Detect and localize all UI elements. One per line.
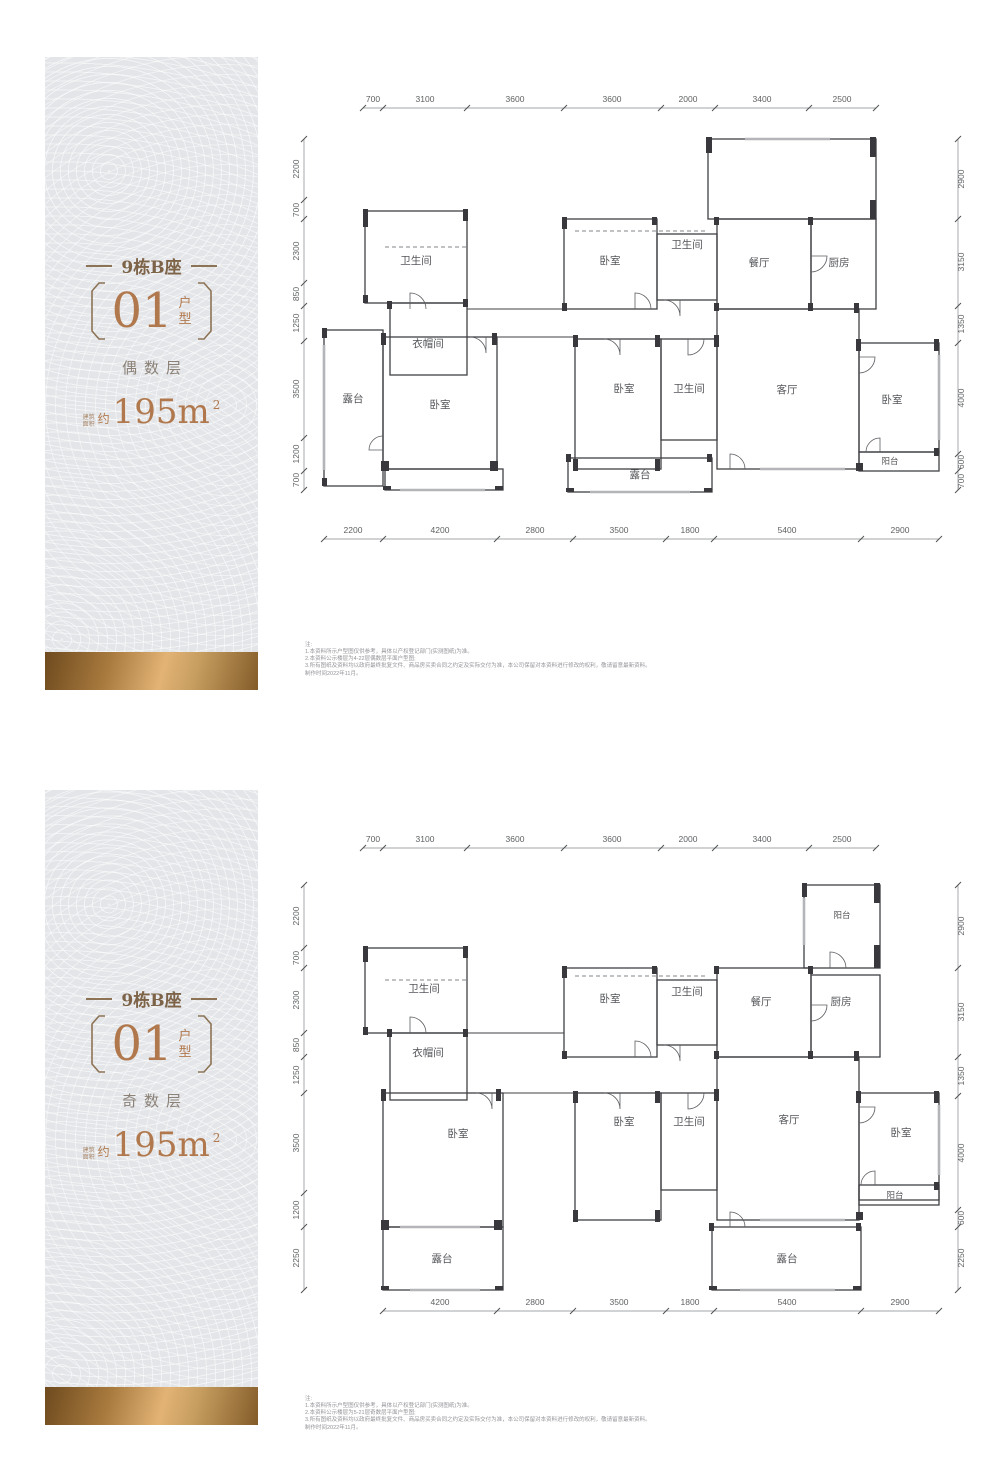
room-label-cloakroom: 衣帽间 <box>412 337 444 350</box>
area-value: 195m <box>113 1128 210 1162</box>
dim-label: 2900 <box>891 525 910 535</box>
dim-label: 3600 <box>603 94 622 104</box>
floor-type-label: 奇数层 <box>45 1090 258 1111</box>
bracket-right-icon <box>198 282 212 340</box>
dim-label: 2900 <box>956 169 966 188</box>
dim-label: 2800 <box>526 525 545 535</box>
decor-dash-right <box>191 265 217 267</box>
building-name: 9栋B座 <box>121 986 181 1011</box>
dim-label: 2800 <box>526 1297 545 1307</box>
room-label-bed-mid: 卧室 <box>614 382 635 395</box>
dim-label: 3500 <box>610 1297 629 1307</box>
dim-label: 4000 <box>956 388 966 407</box>
floor-plan-odd: 700 3100 3600 3600 2000 3400 2500 4200 2… <box>290 800 990 1340</box>
building-label: 9栋B座 <box>45 253 258 278</box>
room-label-bed-left: 卧室 <box>430 398 451 411</box>
dim-label: 3500 <box>291 379 301 398</box>
area-block: 建筑 面积 约 195m 2 <box>45 395 258 433</box>
bracket-left-icon <box>91 1015 105 1073</box>
dim-label: 700 <box>366 94 380 104</box>
note-line: 制作时间2022年11月。 <box>305 671 735 678</box>
room-label-bath-top-mid: 卫生间 <box>671 985 703 998</box>
dim-label: 1250 <box>291 1065 301 1084</box>
unit-suffix-bottom: 型 <box>179 312 192 326</box>
dim-label: 2200 <box>291 906 301 925</box>
dim-label: 3600 <box>506 834 525 844</box>
dim-label: 2250 <box>291 1248 301 1267</box>
dim-label: 2500 <box>833 834 852 844</box>
dim-label: 700 <box>291 473 301 487</box>
windows-layer <box>324 139 939 492</box>
dim-label: 700 <box>956 474 966 488</box>
area-approx: 约 <box>98 410 110 427</box>
dim-label: 2000 <box>679 834 698 844</box>
plan-notes-even: 注: 1.本资料所示户型图仅供参考，具体以产权登记部门(实测图纸)为准。 2.本… <box>305 642 735 678</box>
room-label-balcony-right: 阳台 <box>881 456 898 466</box>
unit-number: 01 <box>111 287 172 335</box>
room-label-terrace-left: 露台 <box>343 392 364 405</box>
unit-suffix: 户 型 <box>179 1029 192 1060</box>
gold-band <box>45 1387 258 1425</box>
room-label-terrace-bottom: 露台 <box>630 468 651 481</box>
dim-label: 2200 <box>344 525 363 535</box>
room-label-bath-mid: 卫生间 <box>673 382 705 395</box>
unit-number-block: 01 户 型 <box>45 281 258 341</box>
walls-layer <box>324 139 939 492</box>
room-label-bed-mid: 卧室 <box>614 1115 635 1128</box>
dim-label: 1250 <box>291 313 301 332</box>
dim-label: 5400 <box>778 1297 797 1307</box>
room-label-bed-top-mid: 卧室 <box>600 254 621 267</box>
area-prefix: 建筑 面积 <box>83 1148 95 1162</box>
dim-label: 2200 <box>291 159 301 178</box>
dim-label: 3400 <box>753 94 772 104</box>
dim-label: 3150 <box>956 252 966 271</box>
room-label-bed-left: 卧室 <box>448 1127 469 1140</box>
dim-label: 1800 <box>681 1297 700 1307</box>
room-label-terrace-bottom-left: 露台 <box>432 1252 453 1265</box>
doors-layer <box>410 952 875 1227</box>
building-label: 9栋B座 <box>45 986 258 1011</box>
room-label-balcony-right: 阳台 <box>886 1190 903 1200</box>
unit-info-panel-odd: 9栋B座 01 户 型 奇数层 建筑 面积 约 195m 2 <box>45 790 258 1425</box>
decor-dash-left <box>86 998 112 1000</box>
dim-label: 3500 <box>291 1133 301 1152</box>
piers-layer <box>363 883 939 1290</box>
gold-band <box>45 652 258 690</box>
area-superscript: 2 <box>213 398 221 412</box>
unit-info-panel-even: 9栋B座 01 户 型 偶数层 建筑 面积 约 195m 2 <box>45 57 258 690</box>
area-prefix-line2: 面积 <box>83 1155 95 1162</box>
room-label-bath-top-left: 卫生间 <box>400 254 432 267</box>
dim-label: 700 <box>291 203 301 217</box>
area-block: 建筑 面积 约 195m 2 <box>45 1128 258 1166</box>
area-superscript: 2 <box>213 1131 221 1145</box>
room-label-kitchen: 厨房 <box>829 256 850 269</box>
room-label-bath-mid: 卫生间 <box>673 1115 705 1128</box>
area-prefix: 建筑 面积 <box>83 415 95 429</box>
dim-label: 3100 <box>416 834 435 844</box>
dim-label: 2900 <box>891 1297 910 1307</box>
dim-label: 2250 <box>956 1248 966 1267</box>
dim-label: 1200 <box>291 444 301 463</box>
unit-number-block: 01 户 型 <box>45 1014 258 1074</box>
dim-label: 850 <box>291 1038 301 1052</box>
unit-suffix-top: 户 <box>179 1029 192 1043</box>
dim-label: 2500 <box>833 94 852 104</box>
area-approx: 约 <box>98 1143 110 1160</box>
dim-label: 4200 <box>431 525 450 535</box>
room-label-dining: 餐厅 <box>749 256 770 269</box>
decor-dash-right <box>191 998 217 1000</box>
decor-dash-left <box>86 265 112 267</box>
room-label-living: 客厅 <box>777 383 798 396</box>
room-label-kitchen: 厨房 <box>831 995 852 1008</box>
area-prefix-line2: 面积 <box>83 422 95 429</box>
room-label-bath-top-mid: 卫生间 <box>671 238 703 251</box>
floor-type-label: 偶数层 <box>45 357 258 378</box>
dimension-labels: 700 3100 3600 3600 2000 3400 2500 4200 2… <box>291 834 966 1307</box>
dim-label: 1200 <box>291 1200 301 1219</box>
dim-label: 850 <box>291 287 301 301</box>
dim-label: 2300 <box>291 241 301 260</box>
bracket-left-icon <box>91 282 105 340</box>
unit-suffix-bottom: 型 <box>179 1045 192 1059</box>
plan-notes-odd: 注: 1.本资料所示户型图仅供参考，具体以产权登记部门(实测图纸)为准。 2.本… <box>305 1396 735 1432</box>
room-label-bed-right: 卧室 <box>891 1126 912 1139</box>
room-label-living: 客厅 <box>779 1113 800 1126</box>
dim-label: 3600 <box>603 834 622 844</box>
piers-layer <box>322 137 939 492</box>
building-name: 9栋B座 <box>121 253 181 278</box>
dim-label: 600 <box>956 455 966 469</box>
dim-label: 700 <box>366 834 380 844</box>
dim-label: 1800 <box>681 525 700 535</box>
unit-suffix: 户 型 <box>179 296 192 327</box>
dim-label: 2000 <box>679 94 698 104</box>
dim-label: 3400 <box>753 834 772 844</box>
dim-label: 3500 <box>610 525 629 535</box>
dim-label: 2900 <box>956 916 966 935</box>
dim-label: 3100 <box>416 94 435 104</box>
note-line: 3.所有图纸及资料均以政府最终批复文件、商品房买卖合同之约定及实际交付为准，本公… <box>305 1417 735 1424</box>
dim-label: 1350 <box>956 1066 966 1085</box>
doors-layer <box>369 256 880 469</box>
dim-label: 5400 <box>778 525 797 535</box>
unit-number: 01 <box>111 1020 172 1068</box>
unit-suffix-top: 户 <box>179 296 192 310</box>
room-label-bath-top-left: 卫生间 <box>408 982 440 995</box>
walls-layer <box>365 885 939 1290</box>
floor-plan-even: 700 3100 3600 3600 2000 3400 2500 2200 4… <box>290 60 990 600</box>
dim-label: 4200 <box>431 1297 450 1307</box>
room-labels: 卫生间 衣帽间 露台 卧室 卧室 卫生间 餐厅 厨房 卧室 卫生间 客厅 卧室 … <box>343 238 903 481</box>
room-label-cloakroom: 衣帽间 <box>412 1046 444 1059</box>
dim-label: 3150 <box>956 1002 966 1021</box>
dim-label: 1350 <box>956 314 966 333</box>
dim-label: 2300 <box>291 990 301 1009</box>
dim-label: 4000 <box>956 1143 966 1162</box>
note-line: 3.所有图纸及资料均以政府最终批复文件、商品房买卖合同之约定及实际交付为准，本公… <box>305 663 735 670</box>
note-line: 制作时间2022年11月。 <box>305 1425 735 1432</box>
room-label-terrace-bottom: 露台 <box>777 1252 798 1265</box>
room-label-bed-right: 卧室 <box>882 393 903 406</box>
room-label-bed-top-mid: 卧室 <box>600 992 621 1005</box>
room-label-balcony-top: 阳台 <box>833 910 850 920</box>
dim-label: 700 <box>291 951 301 965</box>
dim-label: 600 <box>956 1211 966 1225</box>
dimension-lines <box>301 845 961 1314</box>
room-label-dining: 餐厅 <box>751 995 772 1008</box>
bracket-right-icon <box>198 1015 212 1073</box>
dim-label: 3600 <box>506 94 525 104</box>
area-value: 195m <box>113 395 210 429</box>
